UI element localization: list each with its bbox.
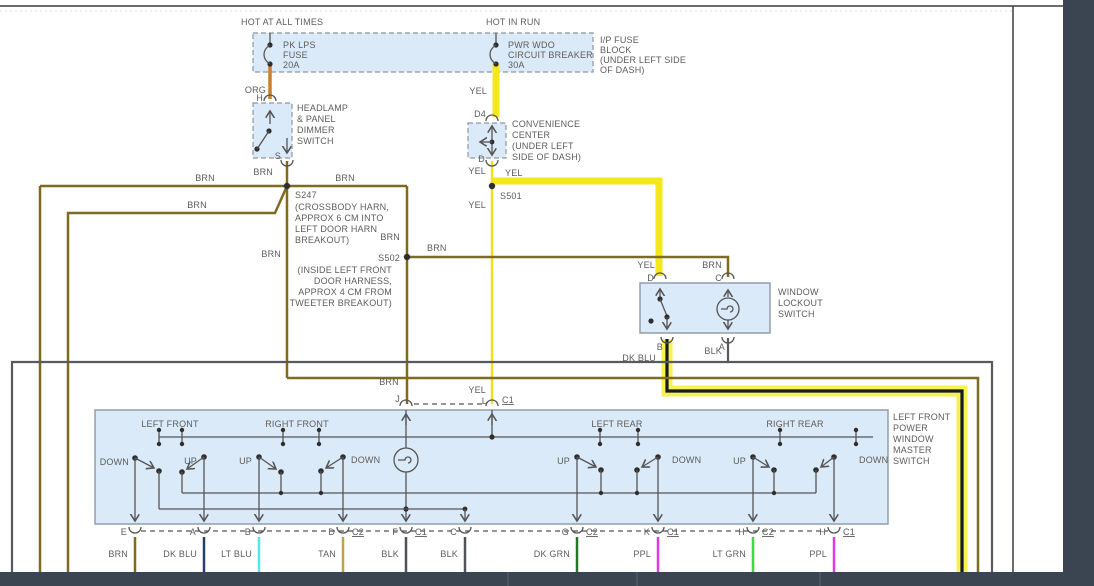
svg-text:FUSE: FUSE: [283, 50, 308, 60]
section-left-rear: LEFT REAR: [591, 419, 642, 429]
yel-label-l: YEL: [468, 385, 486, 395]
svg-text:D: D: [328, 527, 335, 537]
brn-label-lockout: BRN: [702, 260, 722, 270]
brn-label-7: BRN: [427, 243, 447, 253]
brn-label-1: BRN: [253, 167, 273, 177]
svg-text:G: G: [562, 527, 569, 537]
svg-text:APPROX 4 CM FROM: APPROX 4 CM FROM: [298, 287, 392, 297]
hot-at-all-times-label: HOT AT ALL TIMES: [241, 17, 323, 27]
svg-text:PPL: PPL: [633, 549, 651, 559]
svg-text:20A: 20A: [283, 60, 300, 70]
brn-label-3: BRN: [335, 173, 355, 183]
splice-s501-dot[interactable]: [489, 183, 495, 189]
breaker-label: PWR WDO: [508, 40, 555, 50]
bottom-panel[interactable]: [0, 572, 1094, 586]
svg-text:(CROSSBODY HARN,: (CROSSBODY HARN,: [295, 202, 389, 212]
section-right-rear: RIGHT REAR: [766, 419, 824, 429]
s501-id: S501: [500, 191, 522, 201]
dimmer-pin-s: S: [275, 151, 281, 161]
svg-text:F: F: [392, 527, 398, 537]
svg-text:MASTER: MASTER: [893, 445, 932, 455]
svg-text:C2: C2: [352, 527, 364, 537]
yel-label-4: YEL: [468, 200, 486, 210]
svg-text:CENTER: CENTER: [512, 130, 551, 140]
lockout-pin-b: B: [657, 342, 663, 352]
convenience-center-label: CONVENIENCE: [512, 119, 580, 129]
lockout-pin-d: D: [647, 273, 654, 283]
rr-down-label: DOWN: [859, 455, 888, 465]
lr-up-label: UP: [557, 456, 570, 466]
brn-label-5: BRN: [261, 249, 281, 259]
yel-label-lockout: YEL: [637, 260, 655, 270]
svg-text:CIRCUIT BREAKER: CIRCUIT BREAKER: [508, 50, 593, 60]
section-left-front: LEFT FRONT: [141, 419, 199, 429]
svg-text:DK GRN: DK GRN: [534, 549, 570, 559]
svg-text:LT GRN: LT GRN: [713, 549, 746, 559]
svg-text:SWITCH: SWITCH: [778, 309, 815, 319]
rf-up-label: UP: [239, 456, 252, 466]
right-panel-edge: [1063, 0, 1094, 586]
svg-text:C1: C1: [667, 527, 679, 537]
svg-text:H: H: [738, 527, 745, 537]
lr-down-label: DOWN: [672, 455, 701, 465]
brn-label-j: BRN: [379, 377, 399, 387]
cc-pin-d4: D4: [474, 109, 486, 119]
diagram-viewer: HOT AT ALL TIMES HOT IN RUN PK LPS FUSE …: [0, 0, 1094, 586]
svg-text:LT BLU: LT BLU: [221, 549, 252, 559]
svg-text:DIMMER: DIMMER: [297, 125, 335, 135]
cc-pin-d: D: [478, 154, 485, 164]
svg-text:DK BLU: DK BLU: [163, 549, 197, 559]
dk-blu-label: DK BLU: [622, 353, 656, 363]
svg-text:BLK: BLK: [440, 549, 458, 559]
lf-down-label: DOWN: [100, 457, 129, 467]
splice-s247-dot[interactable]: [284, 183, 290, 189]
svg-text:(UNDER LEFT SIDE: (UNDER LEFT SIDE: [600, 55, 686, 65]
svg-text:APPROX 6 CM INTO: APPROX 6 CM INTO: [295, 213, 384, 223]
fuse-label: PK LPS: [283, 40, 316, 50]
svg-text:WINDOW: WINDOW: [893, 434, 934, 444]
svg-text:C1: C1: [415, 527, 427, 537]
s247-id: S247: [295, 190, 317, 200]
diagram-canvas: HOT AT ALL TIMES HOT IN RUN PK LPS FUSE …: [0, 0, 1094, 586]
svg-text:BREAKOUT): BREAKOUT): [295, 235, 349, 245]
svg-text:B: B: [245, 527, 251, 537]
svg-text:C1: C1: [843, 527, 855, 537]
svg-text:C: C: [450, 527, 457, 537]
rr-up-label: UP: [733, 456, 746, 466]
dimmer-label: HEADLAMP: [297, 103, 348, 113]
svg-text:SWITCH: SWITCH: [893, 456, 930, 466]
yel-label-top: YEL: [469, 86, 487, 96]
rf-down-label: DOWN: [351, 455, 380, 465]
svg-text:POWER: POWER: [893, 423, 928, 433]
svg-text:A: A: [190, 527, 196, 537]
svg-text:K: K: [644, 527, 650, 537]
hot-in-run-label: HOT IN RUN: [486, 17, 540, 27]
svg-text:PPL: PPL: [809, 549, 827, 559]
lockout-label: WINDOW: [778, 287, 819, 297]
svg-text:E: E: [121, 527, 127, 537]
master-pin-l-connector: C1: [502, 395, 514, 405]
svg-text:30A: 30A: [508, 60, 525, 70]
svg-text:TAN: TAN: [318, 549, 336, 559]
splice-s502-dot[interactable]: [404, 254, 410, 260]
svg-text:OF DASH): OF DASH): [600, 65, 645, 75]
svg-text:DOOR HARNESS,: DOOR HARNESS,: [314, 276, 392, 286]
dimmer-pin-h: H: [256, 93, 263, 103]
svg-text:BLOCK: BLOCK: [600, 45, 632, 55]
svg-text:LEFT DOOR HARN: LEFT DOOR HARN: [295, 224, 377, 234]
master-switch-label: LEFT FRONT: [893, 412, 951, 422]
fuse-block-label: I/P FUSE: [600, 35, 639, 45]
section-right-front: RIGHT FRONT: [265, 419, 329, 429]
svg-text:BLK: BLK: [381, 549, 399, 559]
master-pin-j: J: [395, 394, 400, 404]
brn-label-2: BRN: [195, 173, 215, 183]
svg-text:TWEETER BREAKOUT): TWEETER BREAKOUT): [290, 298, 392, 308]
s502-id: S502: [378, 253, 400, 263]
convenience-center-box[interactable]: [468, 123, 506, 158]
svg-text:C2: C2: [762, 527, 774, 537]
svg-text:H: H: [819, 527, 826, 537]
svg-text:& PANEL: & PANEL: [297, 114, 336, 124]
svg-text:LOCKOUT: LOCKOUT: [778, 298, 823, 308]
svg-text:SIDE OF DASH): SIDE OF DASH): [512, 152, 581, 162]
svg-text:(INSIDE LEFT FRONT: (INSIDE LEFT FRONT: [298, 265, 393, 275]
brn-label-4: BRN: [187, 200, 207, 210]
lockout-pin-c: C: [715, 273, 722, 283]
svg-text:BRN: BRN: [108, 549, 128, 559]
svg-text:SWITCH: SWITCH: [297, 136, 334, 146]
yel-label-2: YEL: [468, 166, 486, 176]
brn-label-6: BRN: [380, 232, 400, 242]
yel-label-3: YEL: [505, 168, 523, 178]
blk-label: BLK: [704, 346, 722, 356]
lf-up-label: UP: [184, 456, 197, 466]
svg-text:C2: C2: [586, 527, 598, 537]
svg-text:(UNDER LEFT: (UNDER LEFT: [512, 141, 574, 151]
